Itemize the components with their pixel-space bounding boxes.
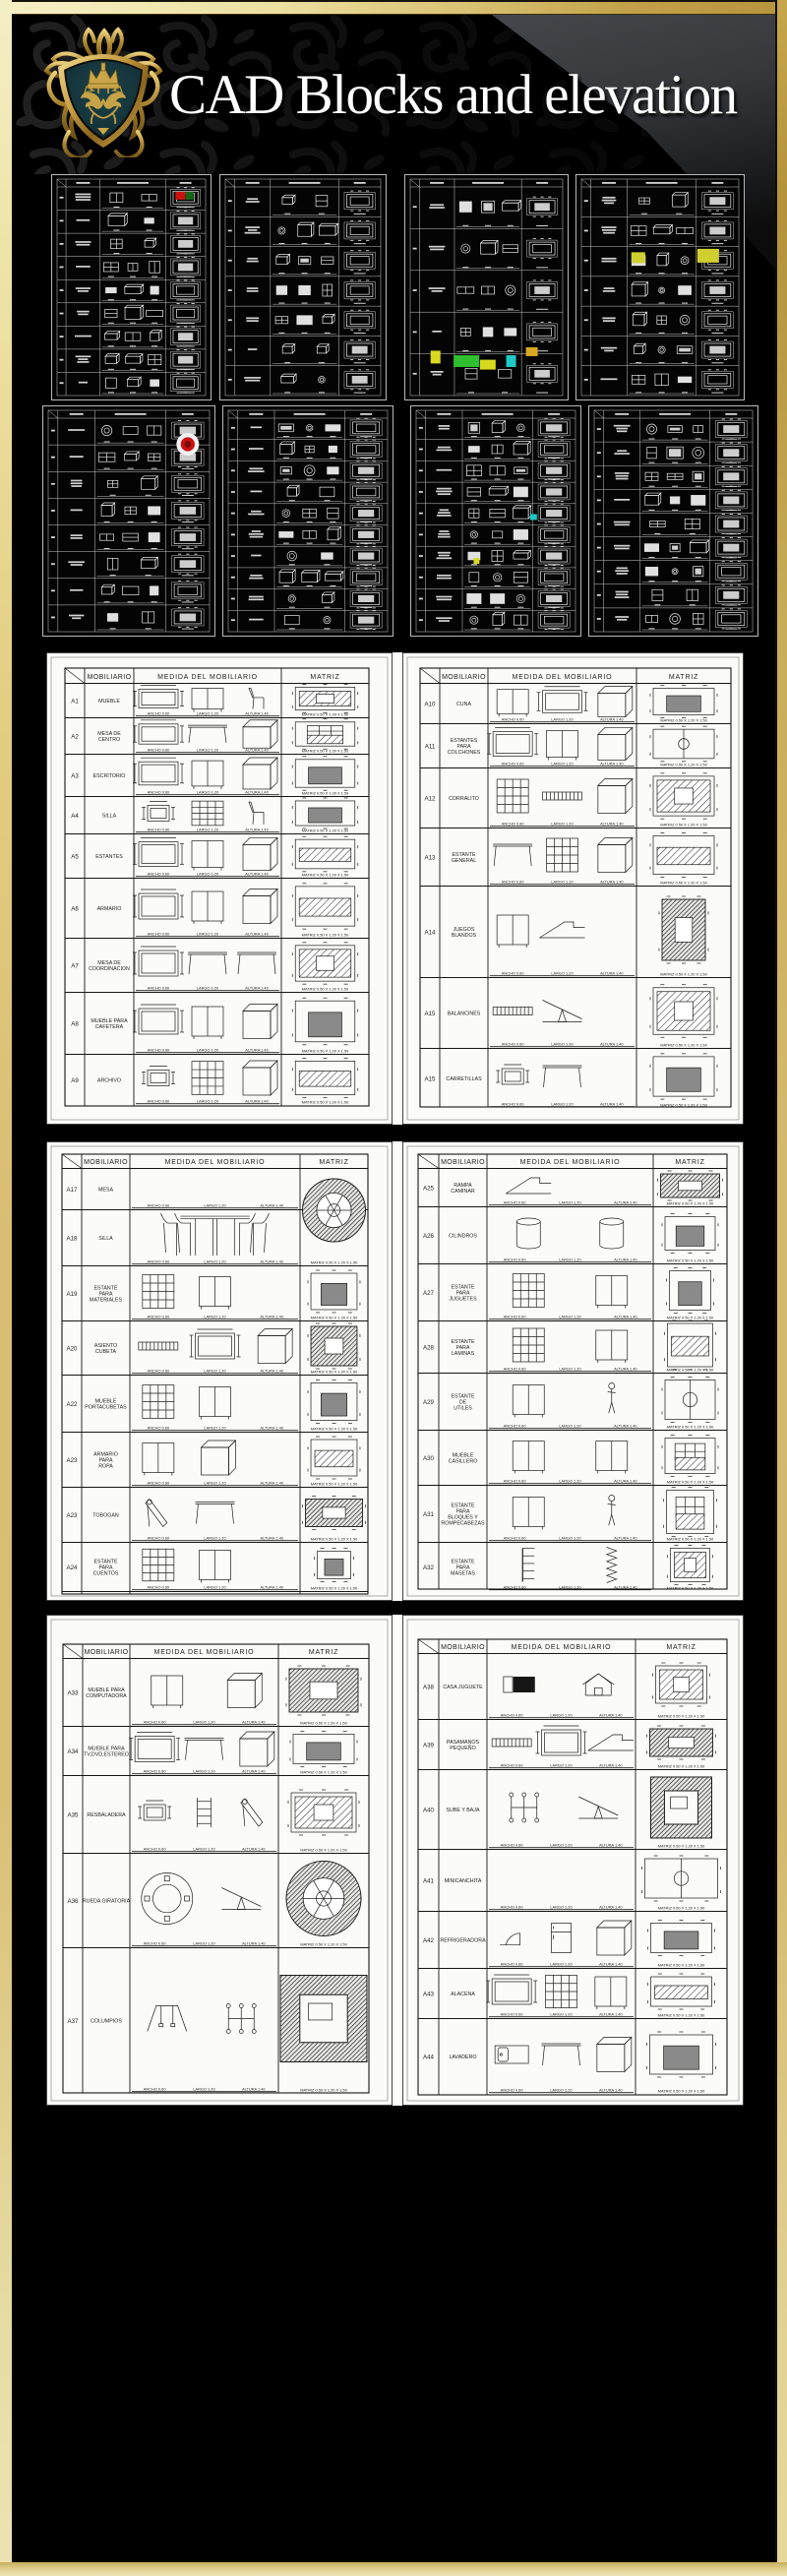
- svg-text:LARGO 1.20: LARGO 1.20: [197, 872, 219, 877]
- svg-text:MATRIZ: MATRIZ: [675, 1159, 704, 1166]
- svg-text:PORTACUBETAS: PORTACUBETAS: [85, 1405, 127, 1411]
- svg-text:MATRIZ 0.50 X 1.20 X 1.50: MATRIZ 0.50 X 1.20 X 1.50: [660, 822, 707, 827]
- svg-text:MATRIZ 0.50 X 1.20 X 1.50: MATRIZ 0.50 X 1.20 X 1.50: [667, 1367, 714, 1372]
- svg-text:MATRIZ 0.50 X 1.20 X 1.50: MATRIZ 0.50 X 1.20 X 1.50: [667, 1257, 714, 1262]
- svg-text:MATERIALES: MATERIALES: [90, 1298, 123, 1304]
- svg-text:ANCHO 0.60: ANCHO 0.60: [147, 1203, 170, 1208]
- svg-text:LARGO 1.20: LARGO 1.20: [551, 1102, 574, 1107]
- svg-text:ANCHO 0.60: ANCHO 0.60: [148, 711, 171, 716]
- svg-text:ALTURA 1.40: ALTURA 1.40: [245, 872, 269, 877]
- svg-text:LARGO 1.20: LARGO 1.20: [559, 1536, 581, 1541]
- svg-text:MATRIZ 0.50 X 1.20 X 1.50: MATRIZ 0.50 X 1.20 X 1.50: [658, 1713, 705, 1718]
- svg-text:LARGO 1.20: LARGO 1.20: [197, 790, 219, 795]
- svg-text:MUEBLE: MUEBLE: [98, 699, 120, 705]
- svg-text:LARGO 1.20: LARGO 1.20: [551, 971, 574, 976]
- svg-text:A12: A12: [424, 796, 436, 803]
- svg-text:MEDIDA DEL MOBILIARIO: MEDIDA DEL MOBILIARIO: [513, 674, 613, 681]
- svg-text:UTILES: UTILES: [454, 1406, 472, 1412]
- svg-text:A34: A34: [67, 1748, 79, 1755]
- svg-text:SUBE Y BAJA: SUBE Y BAJA: [447, 1808, 480, 1813]
- svg-text:MOBILIARIO: MOBILIARIO: [84, 1159, 128, 1166]
- svg-text:ALTURA 1.40: ALTURA 1.40: [260, 1481, 283, 1486]
- svg-text:LARGO 1.20: LARGO 1.20: [551, 880, 574, 885]
- svg-text:A23: A23: [66, 1512, 78, 1519]
- svg-text:TV,DVD,ESTEREO: TV,DVD,ESTEREO: [84, 1752, 129, 1758]
- svg-text:ALTURA 1.40: ALTURA 1.40: [599, 2088, 623, 2093]
- svg-text:COMPUTADORA: COMPUTADORA: [86, 1693, 127, 1699]
- svg-text:ANCHO 0.60: ANCHO 0.60: [147, 1585, 170, 1590]
- svg-text:LARGO 1.20: LARGO 1.20: [559, 1315, 581, 1319]
- svg-text:LARGO 1.20: LARGO 1.20: [550, 1763, 573, 1768]
- svg-text:CILINDROS: CILINDROS: [449, 1234, 477, 1240]
- svg-text:RUEDA GIRATORIA: RUEDA GIRATORIA: [83, 1899, 131, 1905]
- svg-text:ANCHO 0.60: ANCHO 0.60: [502, 1102, 525, 1107]
- svg-text:ALTURA 1.40: ALTURA 1.40: [599, 1713, 623, 1718]
- svg-text:A38: A38: [423, 1685, 435, 1691]
- svg-text:CENTRO: CENTRO: [98, 737, 120, 743]
- svg-text:ANCHO 0.60: ANCHO 0.60: [144, 1769, 167, 1774]
- svg-text:LARGO 1.20: LARGO 1.20: [193, 2087, 215, 2092]
- svg-text:CUENTOS: CUENTOS: [93, 1571, 119, 1577]
- svg-text:ALTURA 1.40: ALTURA 1.40: [245, 932, 269, 937]
- svg-text:ANCHO 0.60: ANCHO 0.60: [501, 2088, 524, 2093]
- svg-text:MINICANCHITA: MINICANCHITA: [445, 1878, 482, 1884]
- svg-text:ANCHO 0.60: ANCHO 0.60: [148, 748, 171, 753]
- svg-text:A22: A22: [66, 1401, 78, 1408]
- svg-text:LARGO 1.20: LARGO 1.20: [197, 748, 219, 753]
- svg-text:MATRIZ 0.50 X 1.20 X 1.50: MATRIZ 0.50 X 1.20 X 1.50: [311, 1315, 358, 1319]
- svg-text:LARGO 1.20: LARGO 1.20: [204, 1315, 226, 1319]
- svg-text:A26: A26: [423, 1233, 435, 1240]
- svg-text:ALTURA 1.40: ALTURA 1.40: [242, 2087, 266, 2092]
- svg-text:LARGO 1.20: LARGO 1.20: [197, 711, 219, 716]
- svg-text:A17: A17: [66, 1187, 78, 1194]
- svg-text:LARGO 1.20: LARGO 1.20: [559, 1257, 581, 1262]
- svg-text:LARGO 1.20: LARGO 1.20: [559, 1200, 581, 1205]
- svg-text:LARGO 1.20: LARGO 1.20: [551, 822, 574, 827]
- svg-text:MATRIZ 0.50 X 1.20 X 1.50: MATRIZ 0.50 X 1.20 X 1.50: [658, 2088, 705, 2093]
- svg-text:ESTANTES: ESTANTES: [95, 854, 123, 860]
- svg-text:ANCHO 0.60: ANCHO 0.60: [504, 1257, 527, 1262]
- svg-text:ALTURA 1.40: ALTURA 1.40: [245, 828, 269, 832]
- svg-text:SILLA: SILLA: [102, 814, 117, 820]
- svg-text:ANCHO 0.60: ANCHO 0.60: [502, 717, 525, 722]
- svg-text:ANCHO 0.60: ANCHO 0.60: [502, 1042, 525, 1047]
- svg-text:CAMINAR: CAMINAR: [451, 1189, 475, 1195]
- svg-text:ANCHO 0.60: ANCHO 0.60: [147, 1481, 170, 1486]
- svg-text:CASILLERO: CASILLERO: [449, 1459, 478, 1465]
- svg-text:ANCHO 0.60: ANCHO 0.60: [504, 1424, 527, 1429]
- svg-text:MATRIZ 0.50 X 1.20 X 1.50: MATRIZ 0.50 X 1.20 X 1.50: [302, 711, 349, 716]
- svg-text:ANCHO 0.60: ANCHO 0.60: [144, 1847, 167, 1852]
- svg-text:ANCHO 0.60: ANCHO 0.60: [147, 1426, 170, 1431]
- svg-text:LAVADERO: LAVADERO: [449, 2055, 476, 2060]
- svg-text:A27: A27: [423, 1290, 435, 1297]
- svg-text:ESCRITORIO: ESCRITORIO: [93, 773, 126, 779]
- svg-text:MATRIZ: MATRIZ: [309, 1649, 338, 1656]
- svg-text:GENERAL: GENERAL: [452, 858, 476, 864]
- svg-text:ALTURA 1.40: ALTURA 1.40: [600, 971, 624, 976]
- svg-text:LARGO 1.20: LARGO 1.20: [550, 1713, 573, 1718]
- svg-text:LARGO 1.20: LARGO 1.20: [193, 1769, 215, 1774]
- svg-text:ALTURA 1.40: ALTURA 1.40: [260, 1536, 283, 1541]
- svg-text:A9: A9: [71, 1077, 79, 1084]
- svg-text:MOBILIARIO: MOBILIARIO: [441, 1644, 485, 1651]
- svg-text:A6: A6: [71, 906, 79, 913]
- svg-text:LARGO 1.20: LARGO 1.20: [193, 1720, 215, 1725]
- svg-text:ALTURA 1.40: ALTURA 1.40: [600, 1102, 624, 1107]
- svg-text:A37: A37: [67, 2018, 79, 2025]
- svg-text:A32: A32: [423, 1564, 435, 1571]
- svg-text:A28: A28: [423, 1345, 435, 1352]
- svg-text:ANCHO 0.60: ANCHO 0.60: [147, 1315, 170, 1319]
- svg-text:ANCHO 0.60: ANCHO 0.60: [147, 1369, 170, 1374]
- svg-text:A15: A15: [424, 1011, 436, 1017]
- svg-text:MATRIZ: MATRIZ: [310, 674, 339, 681]
- svg-text:ANCHO 0.60: ANCHO 0.60: [144, 1720, 167, 1725]
- svg-text:A14: A14: [424, 930, 436, 937]
- svg-text:A41: A41: [423, 1878, 435, 1885]
- svg-text:A13: A13: [424, 855, 436, 862]
- svg-text:LARGO 1.20: LARGO 1.20: [204, 1481, 226, 1486]
- svg-text:MATRIZ 0.50 X 1.20 X 1.50: MATRIZ 0.50 X 1.20 X 1.50: [302, 1099, 349, 1104]
- svg-text:MATRIZ 0.50 X 1.20 X 1.50: MATRIZ 0.50 X 1.20 X 1.50: [302, 986, 349, 991]
- svg-text:MOBILIARIO: MOBILIARIO: [441, 1159, 485, 1166]
- svg-text:ALTURA 1.40: ALTURA 1.40: [614, 1367, 637, 1372]
- svg-text:ANCHO 0.60: ANCHO 0.60: [502, 762, 525, 767]
- svg-text:ANCHO 0.60: ANCHO 0.60: [501, 1713, 524, 1718]
- svg-text:LARGO 1.20: LARGO 1.20: [204, 1536, 226, 1541]
- svg-text:ALTURA 1.40: ALTURA 1.40: [614, 1315, 637, 1319]
- svg-text:LARGO 1.20: LARGO 1.20: [197, 932, 219, 937]
- svg-text:MATRIZ 0.50 X 1.20 X 1.50: MATRIZ 0.50 X 1.20 X 1.50: [311, 1259, 358, 1264]
- svg-text:A7: A7: [71, 963, 79, 970]
- svg-text:CORRALITO: CORRALITO: [449, 796, 479, 802]
- svg-text:MOBILIARIO: MOBILIARIO: [88, 674, 132, 681]
- svg-text:LARGO 1.20: LARGO 1.20: [559, 1367, 581, 1372]
- svg-text:A31: A31: [423, 1511, 435, 1518]
- svg-text:ANCHO 0.60: ANCHO 0.60: [501, 1763, 524, 1768]
- svg-text:ALACENA: ALACENA: [451, 1992, 475, 1997]
- svg-text:ALTURA 1.40: ALTURA 1.40: [245, 986, 269, 991]
- svg-text:A33: A33: [67, 1690, 79, 1697]
- svg-text:A1: A1: [71, 699, 79, 705]
- svg-text:ANCHO 0.60: ANCHO 0.60: [148, 1048, 171, 1053]
- svg-text:MASETAS: MASETAS: [451, 1571, 475, 1577]
- svg-text:ANCHO 0.60: ANCHO 0.60: [501, 1905, 524, 1910]
- svg-text:ALTURA 1.40: ALTURA 1.40: [242, 1847, 266, 1852]
- svg-text:A43: A43: [423, 1992, 435, 1998]
- svg-text:A11: A11: [425, 744, 436, 751]
- svg-text:MATRIZ 0.50 X 1.20 X 1.50: MATRIZ 0.50 X 1.20 X 1.50: [667, 1585, 714, 1590]
- svg-text:ANCHO 0.60: ANCHO 0.60: [502, 822, 525, 827]
- svg-text:ALTURA 1.40: ALTURA 1.40: [599, 1905, 623, 1910]
- svg-text:A4: A4: [71, 813, 79, 820]
- svg-text:A36: A36: [67, 1898, 79, 1905]
- svg-text:LARGO 1.20: LARGO 1.20: [559, 1585, 581, 1590]
- svg-text:ALTURA 1.40: ALTURA 1.40: [260, 1585, 283, 1590]
- svg-text:ROPA: ROPA: [98, 1464, 113, 1470]
- svg-text:MATRIZ 0.50 X 1.20 X 1.50: MATRIZ 0.50 X 1.20 X 1.50: [667, 1200, 714, 1205]
- svg-text:ANCHO 0.60: ANCHO 0.60: [504, 1200, 527, 1205]
- svg-text:MATRIZ 0.50 X 1.20 X 1.50: MATRIZ 0.50 X 1.20 X 1.50: [667, 1315, 714, 1319]
- svg-text:MEDIDA DEL MOBILIARIO: MEDIDA DEL MOBILIARIO: [165, 1159, 266, 1166]
- svg-text:LARGO 1.20: LARGO 1.20: [204, 1259, 226, 1264]
- svg-text:A8: A8: [71, 1021, 79, 1028]
- svg-text:A10: A10: [424, 702, 436, 708]
- svg-text:PEQUEÑO: PEQUEÑO: [450, 1745, 476, 1751]
- svg-text:MATRIZ 0.50 X 1.20 X 1.50: MATRIZ 0.50 X 1.20 X 1.50: [660, 1102, 707, 1107]
- svg-text:ANCHO 0.60: ANCHO 0.60: [502, 880, 525, 885]
- svg-text:ALTURA 1.40: ALTURA 1.40: [614, 1536, 637, 1541]
- svg-text:MATRIZ 0.50 X 1.20 X 1.50: MATRIZ 0.50 X 1.20 X 1.50: [311, 1585, 358, 1590]
- svg-text:ANCHO 0.60: ANCHO 0.60: [504, 1536, 527, 1541]
- svg-text:MATRIZ 0.50 X 1.20 X 1.50: MATRIZ 0.50 X 1.20 X 1.50: [667, 1536, 714, 1541]
- svg-text:LARGO 1.20: LARGO 1.20: [550, 1843, 573, 1848]
- svg-text:LARGO 1.20: LARGO 1.20: [551, 1042, 574, 1047]
- svg-text:CASA JUGUETE: CASA JUGUETE: [443, 1685, 483, 1690]
- svg-text:SILLA: SILLA: [98, 1236, 113, 1242]
- svg-text:MATRIZ 0.50 X 1.20 X 1.50: MATRIZ 0.50 X 1.20 X 1.50: [658, 2012, 705, 2017]
- svg-text:TOBOGAN: TOBOGAN: [92, 1513, 119, 1519]
- svg-text:LARGO 1.20: LARGO 1.20: [559, 1479, 581, 1484]
- svg-text:MEDIDA DEL MOBILIARIO: MEDIDA DEL MOBILIARIO: [520, 1159, 621, 1166]
- svg-text:ALTURA 1.40: ALTURA 1.40: [242, 1769, 266, 1774]
- svg-text:MATRIZ 0.50 X 1.20 X 1.50: MATRIZ 0.50 X 1.20 X 1.50: [660, 762, 707, 767]
- svg-text:MATRIZ 0.50 X 1.20 X 1.50: MATRIZ 0.50 X 1.20 X 1.50: [667, 1424, 714, 1429]
- svg-text:LARGO 1.20: LARGO 1.20: [550, 1962, 573, 1967]
- svg-text:LARGO 1.20: LARGO 1.20: [197, 986, 219, 991]
- svg-text:LARGO 1.20: LARGO 1.20: [193, 1847, 215, 1852]
- svg-text:ANCHO 0.60: ANCHO 0.60: [504, 1479, 527, 1484]
- svg-text:A35: A35: [67, 1812, 79, 1819]
- svg-text:ALTURA 1.40: ALTURA 1.40: [260, 1369, 283, 1374]
- svg-text:A18: A18: [66, 1236, 78, 1243]
- svg-text:ALTURA 1.40: ALTURA 1.40: [245, 1099, 269, 1104]
- svg-text:MEDIDA DEL MOBILIARIO: MEDIDA DEL MOBILIARIO: [512, 1644, 612, 1651]
- svg-text:ALTURA 1.40: ALTURA 1.40: [260, 1203, 283, 1208]
- svg-text:MATRIZ 0.50 X 1.20 X 1.50: MATRIZ 0.50 X 1.20 X 1.50: [302, 872, 349, 877]
- svg-text:ANCHO 0.60: ANCHO 0.60: [148, 1099, 171, 1104]
- svg-text:ANCHO 0.60: ANCHO 0.60: [504, 1315, 527, 1319]
- svg-text:ALTURA 1.40: ALTURA 1.40: [245, 1048, 269, 1053]
- svg-text:CAFETERA: CAFETERA: [95, 1024, 124, 1030]
- svg-text:BALANCINES: BALANCINES: [448, 1012, 481, 1017]
- svg-text:CARRETILLAS: CARRETILLAS: [446, 1076, 482, 1082]
- svg-text:ANCHO 0.60: ANCHO 0.60: [147, 1259, 170, 1264]
- svg-text:MATRIZ 0.50 X 1.20 X 1.50: MATRIZ 0.50 X 1.20 X 1.50: [311, 1426, 358, 1431]
- svg-text:MATRIZ: MATRIZ: [666, 1644, 696, 1651]
- svg-text:MATRIZ 0.50 X 1.20 X 1.50: MATRIZ 0.50 X 1.20 X 1.50: [658, 1763, 705, 1768]
- svg-text:ALTURA 1.40: ALTURA 1.40: [614, 1200, 637, 1205]
- svg-text:RESBALADERA: RESBALADERA: [87, 1812, 126, 1818]
- svg-text:LARGO 1.20: LARGO 1.20: [197, 828, 219, 832]
- svg-text:MATRIZ 0.50 X 1.20 X 1.50: MATRIZ 0.50 X 1.20 X 1.50: [302, 790, 349, 795]
- svg-text:LARGO 1.20: LARGO 1.20: [204, 1585, 226, 1590]
- svg-text:CUNA: CUNA: [456, 702, 471, 707]
- svg-text:ANCHO 0.60: ANCHO 0.60: [504, 1367, 527, 1372]
- svg-text:MATRIZ 0.50 X 1.20 X 1.50: MATRIZ 0.50 X 1.20 X 1.50: [667, 1479, 714, 1484]
- svg-text:MATRIZ 0.50 X 1.20 X 1.50: MATRIZ 0.50 X 1.20 X 1.50: [302, 828, 349, 832]
- svg-text:A23: A23: [66, 1457, 78, 1464]
- svg-text:MATRIZ 0.50 X 1.20 X 1.50: MATRIZ 0.50 X 1.20 X 1.50: [300, 1847, 347, 1852]
- svg-text:CUBETA: CUBETA: [95, 1349, 117, 1355]
- svg-text:ARMARIO: ARMARIO: [97, 906, 122, 912]
- svg-text:ALTURA 1.40: ALTURA 1.40: [242, 1941, 266, 1946]
- svg-text:ALTURA 1.40: ALTURA 1.40: [600, 822, 624, 827]
- svg-text:A20: A20: [66, 1346, 78, 1353]
- svg-text:MESA: MESA: [98, 1188, 113, 1194]
- svg-text:MEDIDA DEL MOBILIARIO: MEDIDA DEL MOBILIARIO: [157, 674, 258, 681]
- svg-text:ANCHO 0.60: ANCHO 0.60: [501, 1843, 524, 1848]
- svg-text:MATRIZ 0.50 X 1.20 X 1.50: MATRIZ 0.50 X 1.20 X 1.50: [660, 1042, 707, 1047]
- svg-text:MATRIZ 0.50 X 1.20 X 1.50: MATRIZ 0.50 X 1.20 X 1.50: [311, 1481, 358, 1486]
- svg-text:LARGO 1.20: LARGO 1.20: [551, 717, 574, 722]
- svg-text:A3: A3: [71, 773, 79, 780]
- svg-text:MATRIZ: MATRIZ: [319, 1159, 348, 1166]
- svg-text:A29: A29: [423, 1399, 435, 1406]
- svg-text:A44: A44: [423, 2055, 435, 2061]
- svg-text:ALTURA 1.40: ALTURA 1.40: [245, 711, 269, 716]
- svg-text:MATRIZ 0.50 X 1.20 X 1.50: MATRIZ 0.50 X 1.20 X 1.50: [300, 1769, 347, 1774]
- svg-text:ALTURA 1.40: ALTURA 1.40: [260, 1426, 283, 1431]
- svg-text:MATRIZ 0.50 X 1.20 X 1.50: MATRIZ 0.50 X 1.20 X 1.50: [302, 1048, 349, 1053]
- svg-text:COORDINACION: COORDINACION: [89, 966, 130, 972]
- svg-text:ANCHO 0.60: ANCHO 0.60: [148, 932, 171, 937]
- svg-text:A2: A2: [71, 734, 79, 741]
- svg-text:A42: A42: [423, 1937, 435, 1944]
- svg-text:MATRIZ 0.50 X 1.20 X 1.50: MATRIZ 0.50 X 1.20 X 1.50: [658, 1843, 705, 1848]
- svg-text:ALTURA 1.40: ALTURA 1.40: [614, 1585, 637, 1590]
- svg-text:ANCHO 0.60: ANCHO 0.60: [147, 1536, 170, 1541]
- svg-text:ANCHO 0.60: ANCHO 0.60: [144, 2087, 167, 2092]
- svg-text:LARGO 1.20: LARGO 1.20: [197, 1099, 219, 1104]
- svg-text:LARGO 1.20: LARGO 1.20: [550, 1905, 573, 1910]
- svg-text:MATRIZ 0.50 X 1.20 X 1.50: MATRIZ 0.50 X 1.20 X 1.50: [302, 748, 349, 753]
- svg-text:BLANDOS: BLANDOS: [452, 933, 477, 939]
- svg-text:A5: A5: [71, 854, 79, 861]
- svg-text:ANCHO 0.60: ANCHO 0.60: [502, 971, 525, 976]
- svg-text:COLUMPIOS: COLUMPIOS: [91, 2019, 122, 2025]
- svg-text:LARGO 1.20: LARGO 1.20: [193, 1941, 215, 1946]
- svg-text:ALTURA 1.40: ALTURA 1.40: [599, 1843, 623, 1848]
- svg-text:MATRIZ 0.50 X 1.20 X 1.50: MATRIZ 0.50 X 1.20 X 1.50: [300, 2087, 347, 2092]
- svg-text:LAMINAS: LAMINAS: [452, 1351, 475, 1357]
- svg-text:ALTURA 1.40: ALTURA 1.40: [260, 1259, 283, 1264]
- svg-text:LARGO 1.20: LARGO 1.20: [197, 1048, 219, 1053]
- svg-text:ALTURA 1.40: ALTURA 1.40: [599, 2012, 623, 2017]
- svg-text:MOBILIARIO: MOBILIARIO: [85, 1649, 129, 1656]
- svg-text:MATRIZ 0.50 X 1.20 X 1.50: MATRIZ 0.50 X 1.20 X 1.50: [311, 1369, 358, 1374]
- svg-text:LARGO 1.20: LARGO 1.20: [551, 762, 574, 767]
- svg-text:ALTURA 1.40: ALTURA 1.40: [614, 1424, 637, 1429]
- svg-text:A39: A39: [423, 1743, 435, 1749]
- svg-text:A15: A15: [424, 1076, 436, 1083]
- svg-text:LARGO 1.20: LARGO 1.20: [204, 1426, 226, 1431]
- svg-text:ANCHO 0.60: ANCHO 0.60: [144, 1941, 167, 1946]
- svg-text:ANCHO 0.60: ANCHO 0.60: [504, 1585, 527, 1590]
- svg-text:MATRIZ 0.50 X 1.20 X 1.50: MATRIZ 0.50 X 1.20 X 1.50: [658, 1962, 705, 1967]
- svg-text:REFRIGERADORA: REFRIGERADORA: [440, 1938, 486, 1944]
- svg-text:COLCHONES: COLCHONES: [448, 750, 481, 756]
- svg-text:ANCHO 0.60: ANCHO 0.60: [501, 2012, 524, 2017]
- svg-text:A40: A40: [423, 1808, 435, 1814]
- svg-text:A30: A30: [423, 1455, 435, 1462]
- svg-text:LARGO 1.20: LARGO 1.20: [204, 1369, 226, 1374]
- svg-text:ANCHO 0.60: ANCHO 0.60: [148, 872, 171, 877]
- svg-text:ALTURA 1.40: ALTURA 1.40: [599, 1763, 623, 1768]
- svg-text:ALTURA 1.40: ALTURA 1.40: [600, 1042, 624, 1047]
- svg-text:LARGO 1.20: LARGO 1.20: [559, 1424, 581, 1429]
- svg-text:A19: A19: [66, 1291, 78, 1298]
- svg-text:ANCHO 0.60: ANCHO 0.60: [148, 828, 171, 832]
- svg-text:ARCHIVO: ARCHIVO: [97, 1078, 121, 1084]
- svg-text:MATRIZ 0.50 X 1.20 X 1.50: MATRIZ 0.50 X 1.20 X 1.50: [658, 1905, 705, 1910]
- svg-text:LARGO 1.20: LARGO 1.20: [550, 2012, 573, 2017]
- svg-text:LARGO 1.20: LARGO 1.20: [204, 1203, 226, 1208]
- svg-text:MATRIZ 0.50 X 1.20 X 1.50: MATRIZ 0.50 X 1.20 X 1.50: [660, 880, 707, 885]
- svg-text:ALTURA 1.40: ALTURA 1.40: [600, 717, 624, 722]
- svg-text:ANCHO 0.60: ANCHO 0.60: [501, 1962, 524, 1967]
- svg-text:ALTURA 1.40: ALTURA 1.40: [260, 1315, 283, 1319]
- svg-text:MATRIZ 0.50 X 1.20 X 1.50: MATRIZ 0.50 X 1.20 X 1.50: [302, 932, 349, 937]
- svg-text:MEDIDA DEL MOBILIARIO: MEDIDA DEL MOBILIARIO: [154, 1649, 255, 1656]
- svg-text:ALTURA 1.40: ALTURA 1.40: [245, 748, 269, 753]
- svg-text:ANCHO 0.60: ANCHO 0.60: [148, 790, 171, 795]
- svg-text:ALTURA 1.40: ALTURA 1.40: [242, 1720, 266, 1725]
- svg-text:MATRIZ 0.50 X 1.20 X 1.50: MATRIZ 0.50 X 1.20 X 1.50: [300, 1720, 347, 1725]
- svg-text:ALTURA 1.40: ALTURA 1.40: [614, 1479, 637, 1484]
- svg-text:MATRIZ 0.50 X 1.20 X 1.50: MATRIZ 0.50 X 1.20 X 1.50: [311, 1536, 358, 1541]
- svg-text:MATRIZ 0.50 X 1.20 X 1.50: MATRIZ 0.50 X 1.20 X 1.50: [300, 1941, 347, 1946]
- svg-text:ALTURA 1.40: ALTURA 1.40: [614, 1257, 637, 1262]
- svg-text:MATRIZ 0.50 X 1.20 X 1.50: MATRIZ 0.50 X 1.20 X 1.50: [660, 971, 707, 976]
- svg-text:ANCHO 0.60: ANCHO 0.60: [148, 986, 171, 991]
- svg-text:MOBILIARIO: MOBILIARIO: [442, 674, 486, 681]
- svg-text:A24: A24: [66, 1564, 78, 1571]
- svg-text:ROMPECABEZAS: ROMPECABEZAS: [441, 1521, 485, 1527]
- svg-text:ALTURA 1.40: ALTURA 1.40: [600, 880, 624, 885]
- svg-text:A25: A25: [423, 1186, 435, 1193]
- svg-text:ALTURA 1.40: ALTURA 1.40: [245, 790, 269, 795]
- svg-text:ALTURA 1.40: ALTURA 1.40: [599, 1962, 623, 1967]
- svg-text:MATRIZ 0.50 X 1.20 X 1.50: MATRIZ 0.50 X 1.20 X 1.50: [660, 717, 707, 722]
- svg-text:JUGUETES: JUGUETES: [449, 1297, 477, 1303]
- svg-text:ALTURA 1.40: ALTURA 1.40: [600, 762, 624, 767]
- svg-text:MATRIZ: MATRIZ: [669, 674, 698, 681]
- svg-text:LARGO 1.20: LARGO 1.20: [550, 2088, 573, 2093]
